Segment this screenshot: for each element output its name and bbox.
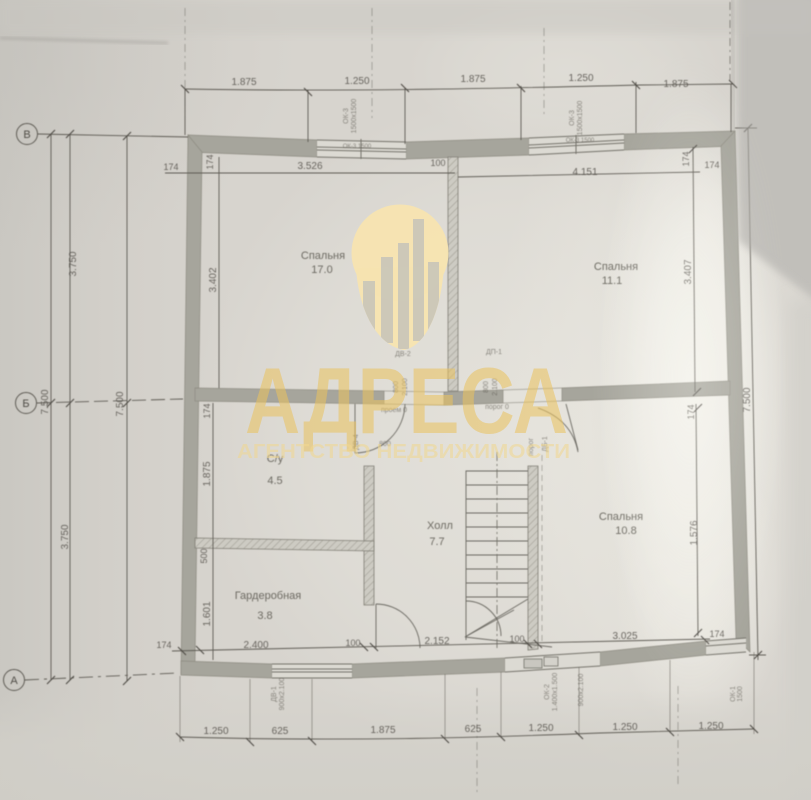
svg-text:2.152: 2.152 bbox=[424, 636, 449, 647]
svg-text:7.500: 7.500 bbox=[115, 391, 126, 416]
svg-text:4.151: 4.151 bbox=[572, 167, 597, 178]
svg-text:625: 625 bbox=[272, 726, 289, 737]
svg-text:1.250: 1.250 bbox=[528, 723, 553, 734]
svg-text:1.400х1.500: 1.400х1.500 bbox=[552, 673, 559, 712]
svg-text:2.400: 2.400 bbox=[243, 640, 268, 651]
svg-text:1.601: 1.601 bbox=[202, 601, 213, 626]
svg-text:ОК-3 1500: ОК-3 1500 bbox=[566, 138, 595, 144]
svg-text:1.250: 1.250 bbox=[612, 722, 637, 733]
svg-text:174: 174 bbox=[163, 162, 178, 172]
svg-text:Спальня: Спальня bbox=[301, 250, 345, 262]
svg-text:7.500: 7.500 bbox=[40, 389, 51, 414]
svg-text:174: 174 bbox=[202, 403, 212, 418]
svg-text:1.875: 1.875 bbox=[231, 77, 256, 88]
svg-text:ДВ-1: ДВ-1 bbox=[271, 686, 278, 702]
svg-text:500: 500 bbox=[199, 548, 209, 563]
svg-text:625: 625 bbox=[465, 724, 482, 735]
svg-text:174: 174 bbox=[156, 640, 171, 650]
svg-text:АГЕНТСТВО НЕДВИЖИМОСТИ: АГЕНТСТВО НЕДВИЖИМОСТИ bbox=[237, 441, 570, 463]
svg-text:1500х1500: 1500х1500 bbox=[577, 101, 584, 136]
svg-text:1.875: 1.875 bbox=[370, 725, 395, 736]
svg-text:1.250: 1.250 bbox=[568, 73, 593, 84]
svg-text:В: В bbox=[23, 129, 30, 141]
svg-text:900х2.100: 900х2.100 bbox=[279, 678, 286, 711]
svg-text:Холл: Холл bbox=[427, 520, 453, 532]
svg-text:1500: 1500 bbox=[737, 686, 744, 702]
svg-text:ОК-1: ОК-1 bbox=[730, 686, 737, 702]
svg-text:3.8: 3.8 bbox=[257, 610, 272, 622]
svg-text:Б: Б bbox=[22, 398, 29, 410]
svg-text:АДРЕСА: АДРЕСА bbox=[245, 348, 568, 453]
svg-text:4.5: 4.5 bbox=[267, 475, 282, 487]
svg-text:ОК-3: ОК-3 bbox=[343, 108, 350, 124]
svg-text:1500х1500: 1500х1500 bbox=[351, 99, 358, 134]
svg-text:А: А bbox=[10, 675, 18, 687]
svg-text:17.0: 17.0 bbox=[311, 264, 332, 276]
svg-text:1.875: 1.875 bbox=[460, 74, 485, 85]
svg-text:1.250: 1.250 bbox=[344, 76, 369, 87]
svg-text:174: 174 bbox=[205, 154, 215, 169]
svg-text:3.526: 3.526 bbox=[297, 161, 322, 172]
svg-text:100: 100 bbox=[345, 638, 360, 648]
svg-text:900х2.100: 900х2.100 bbox=[578, 674, 585, 707]
svg-text:ОК-2: ОК-2 bbox=[544, 684, 551, 700]
svg-text:Гардеробная: Гардеробная bbox=[235, 590, 302, 602]
svg-text:3.750: 3.750 bbox=[68, 251, 79, 276]
svg-text:ОК-3: ОК-3 bbox=[569, 110, 576, 126]
svg-text:7.7: 7.7 bbox=[429, 536, 444, 548]
svg-text:ОК-3 1500: ОК-3 1500 bbox=[343, 144, 372, 150]
svg-text:3.402: 3.402 bbox=[208, 267, 219, 292]
svg-text:100: 100 bbox=[509, 634, 524, 644]
svg-text:100: 100 bbox=[430, 158, 445, 168]
svg-text:1.250: 1.250 bbox=[203, 726, 228, 737]
svg-text:1.250: 1.250 bbox=[698, 721, 723, 732]
svg-text:1.875: 1.875 bbox=[202, 461, 213, 486]
svg-text:3.750: 3.750 bbox=[60, 524, 71, 549]
